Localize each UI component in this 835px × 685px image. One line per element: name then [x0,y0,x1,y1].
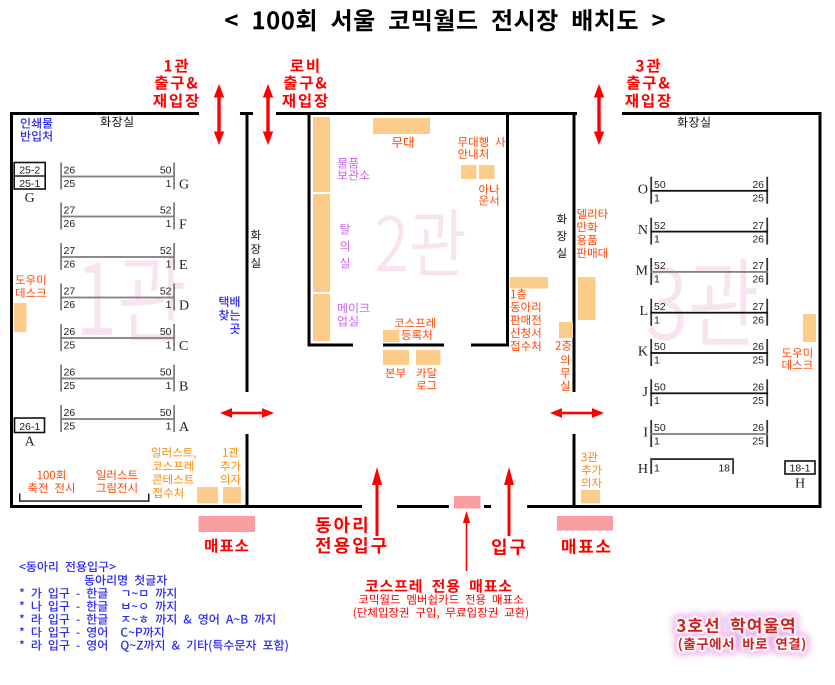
svg-text:26: 26 [752,422,764,434]
svg-text:27: 27 [752,260,764,272]
svg-text:26: 26 [64,326,76,338]
svg-text:H: H [638,462,648,477]
svg-text:1: 1 [654,355,660,367]
svg-text:50: 50 [160,326,172,338]
svg-text:50: 50 [654,179,666,191]
svg-text:26: 26 [752,274,764,286]
svg-text:1: 1 [654,274,660,286]
svg-text:50: 50 [160,367,172,379]
svg-text:52: 52 [160,205,172,217]
svg-text:A: A [25,435,36,450]
svg-text:1: 1 [166,340,172,352]
svg-text:1: 1 [654,463,660,475]
svg-text:25: 25 [64,380,76,392]
svg-text:26: 26 [64,299,76,311]
svg-text:H: H [795,477,805,492]
svg-text:26: 26 [64,218,76,230]
svg-text:G: G [179,178,189,193]
svg-text:25: 25 [752,193,764,205]
svg-text:25: 25 [64,178,76,190]
svg-text:27: 27 [64,245,76,257]
svg-text:1: 1 [166,259,172,271]
svg-text:26: 26 [752,179,764,191]
svg-text:25: 25 [64,421,76,433]
svg-text:1: 1 [654,233,660,245]
svg-text:50: 50 [654,382,666,394]
svg-text:26: 26 [752,382,764,394]
svg-text:26: 26 [64,407,76,419]
svg-text:25: 25 [752,355,764,367]
svg-text:A: A [179,420,190,435]
svg-text:52: 52 [654,220,666,232]
svg-text:52: 52 [160,286,172,298]
svg-text:1: 1 [654,436,660,448]
svg-text:25-1: 25-1 [19,178,40,190]
svg-text:26: 26 [752,341,764,353]
svg-text:1: 1 [166,218,172,230]
svg-text:25: 25 [752,436,764,448]
svg-text:52: 52 [160,245,172,257]
svg-text:18: 18 [718,463,730,475]
svg-text:N: N [638,223,648,238]
svg-text:26: 26 [64,259,76,271]
svg-text:D: D [179,299,189,314]
svg-text:1: 1 [166,380,172,392]
svg-text:1: 1 [654,193,660,205]
svg-text:27: 27 [752,301,764,313]
svg-text:J: J [643,385,649,400]
svg-text:I: I [643,426,648,441]
svg-text:1: 1 [166,178,172,190]
svg-text:25: 25 [64,340,76,352]
svg-text:O: O [638,182,648,197]
svg-text:50: 50 [654,422,666,434]
svg-text:18-1: 18-1 [789,463,810,475]
svg-text:B: B [179,380,188,395]
svg-text:26: 26 [64,165,76,177]
svg-text:50: 50 [160,165,172,177]
svg-text:25-2: 25-2 [19,165,40,177]
svg-text:1: 1 [166,421,172,433]
svg-text:50: 50 [160,407,172,419]
svg-text:L: L [639,304,648,319]
svg-text:50: 50 [654,341,666,353]
svg-text:26-1: 26-1 [19,421,40,433]
svg-text:26: 26 [64,367,76,379]
svg-text:G: G [25,191,35,206]
svg-text:K: K [638,345,648,360]
svg-text:27: 27 [64,286,76,298]
svg-text:E: E [179,258,188,273]
svg-text:26: 26 [752,314,764,326]
svg-text:M: M [636,263,649,278]
svg-text:1: 1 [654,314,660,326]
svg-text:25: 25 [752,395,764,407]
svg-text:52: 52 [654,260,666,272]
svg-text:27: 27 [752,220,764,232]
svg-text:27: 27 [64,205,76,217]
svg-text:F: F [179,218,187,233]
svg-text:26: 26 [752,233,764,245]
svg-text:52: 52 [654,301,666,313]
svg-text:1: 1 [654,395,660,407]
svg-text:C: C [179,339,188,354]
svg-text:1: 1 [166,299,172,311]
